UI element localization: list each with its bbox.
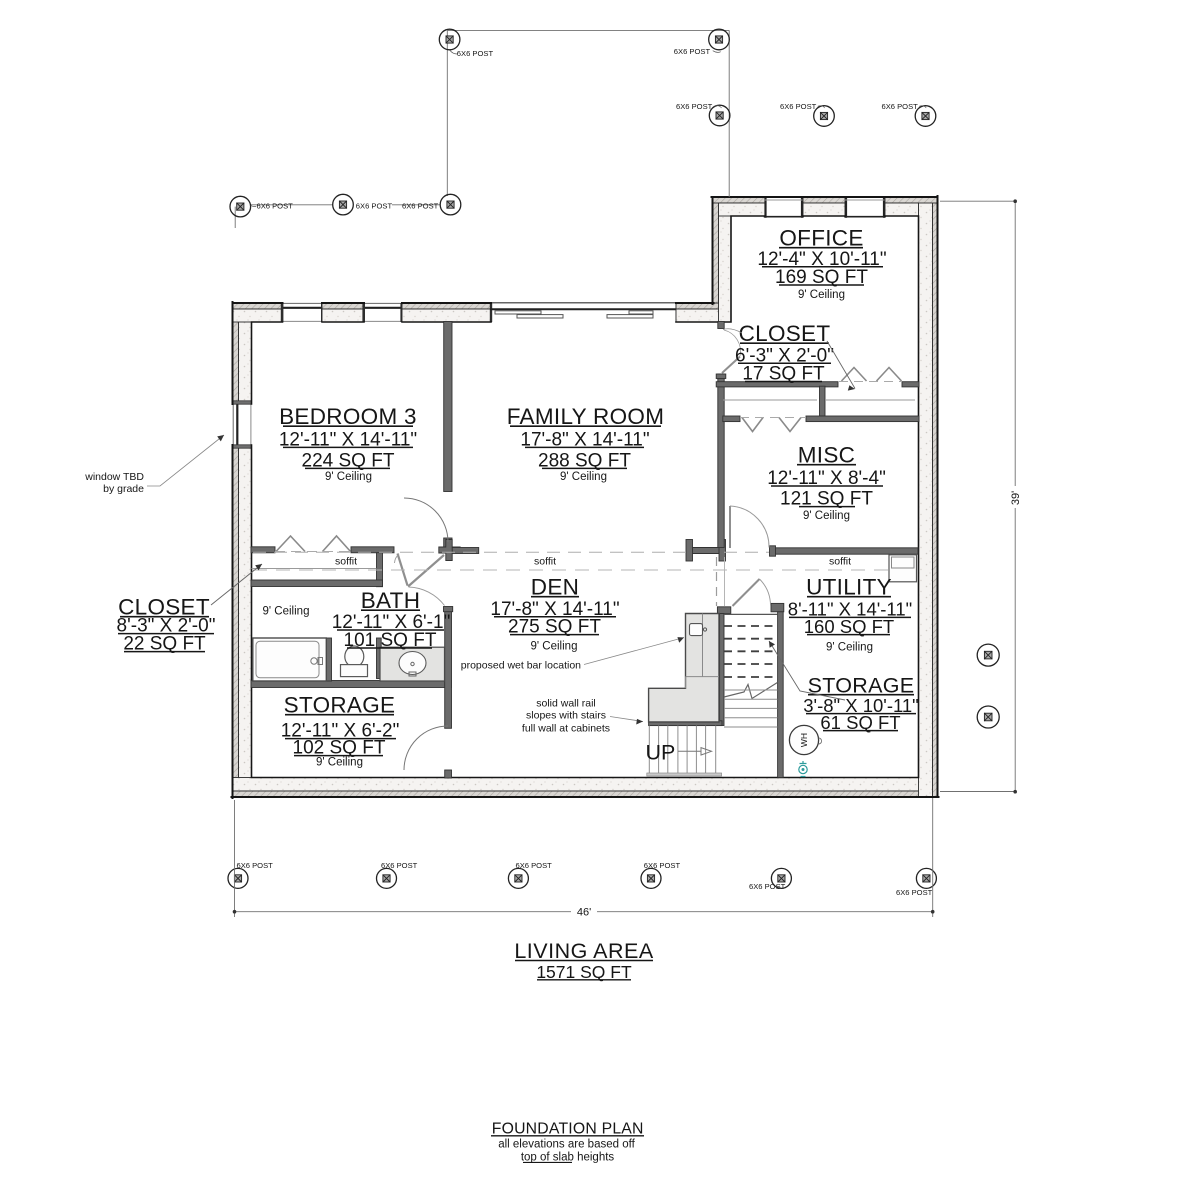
- svg-text:proposed wet bar location: proposed wet bar location: [461, 660, 581, 672]
- svg-text:9' Ceiling: 9' Ceiling: [325, 471, 372, 483]
- svg-text:WH: WH: [799, 733, 809, 747]
- svg-text:6X6 POST: 6X6 POST: [257, 202, 294, 211]
- svg-text:6X6 POST: 6X6 POST: [780, 102, 817, 111]
- svg-text:BATH: BATH: [361, 588, 421, 613]
- svg-text:6X6 POST: 6X6 POST: [674, 47, 711, 56]
- svg-text:UP: UP: [646, 741, 676, 765]
- svg-text:61 SQ FT: 61 SQ FT: [820, 712, 900, 733]
- svg-text:soffit: soffit: [534, 556, 556, 568]
- svg-text:6X6 POST: 6X6 POST: [237, 861, 274, 870]
- svg-text:window TBD: window TBD: [84, 471, 144, 483]
- svg-text:6X6 POST: 6X6 POST: [676, 102, 713, 111]
- svg-text:39': 39': [1010, 491, 1022, 505]
- svg-text:soffit: soffit: [829, 556, 851, 568]
- svg-text:160 SQ FT: 160 SQ FT: [804, 616, 894, 637]
- svg-text:LIVING AREA: LIVING AREA: [514, 939, 653, 963]
- svg-text:solid wall rail: solid wall rail: [536, 698, 596, 710]
- svg-text:soffit: soffit: [335, 556, 357, 568]
- svg-text:DEN: DEN: [531, 575, 579, 600]
- svg-text:MISC: MISC: [798, 443, 855, 468]
- svg-text:6X6 POST: 6X6 POST: [356, 202, 393, 211]
- svg-text:6X6 POST: 6X6 POST: [896, 888, 933, 897]
- svg-text:STORAGE: STORAGE: [284, 693, 396, 718]
- svg-text:9' Ceiling: 9' Ceiling: [826, 641, 873, 653]
- svg-text:6X6 POST: 6X6 POST: [381, 861, 418, 870]
- svg-text:OFFICE: OFFICE: [779, 226, 863, 251]
- svg-text:CLOSET: CLOSET: [739, 321, 831, 346]
- svg-text:slopes with stairs: slopes with stairs: [526, 710, 606, 722]
- svg-text:9' Ceiling: 9' Ceiling: [263, 606, 310, 618]
- svg-text:top of slab heights: top of slab heights: [521, 1152, 615, 1164]
- svg-text:UTILITY: UTILITY: [806, 575, 892, 600]
- svg-text:1571 SQ FT: 1571 SQ FT: [536, 962, 632, 982]
- svg-text:6X6 POST: 6X6 POST: [516, 861, 553, 870]
- svg-text:BEDROOM 3: BEDROOM 3: [279, 404, 417, 429]
- svg-text:full wall at cabinets: full wall at cabinets: [522, 723, 610, 735]
- svg-text:by grade: by grade: [103, 483, 144, 495]
- svg-text:6X6 POST: 6X6 POST: [457, 49, 494, 58]
- svg-text:9' Ceiling: 9' Ceiling: [531, 640, 578, 652]
- svg-text:9' Ceiling: 9' Ceiling: [316, 757, 363, 769]
- svg-text:FAMILY ROOM: FAMILY ROOM: [507, 404, 665, 429]
- svg-text:all elevations are based off: all elevations are based off: [498, 1139, 635, 1151]
- svg-text:6X6 POST: 6X6 POST: [749, 882, 786, 891]
- svg-text:FOUNDATION PLAN: FOUNDATION PLAN: [492, 1121, 644, 1138]
- svg-text:9' Ceiling: 9' Ceiling: [803, 510, 850, 522]
- svg-text:9' Ceiling: 9' Ceiling: [798, 289, 845, 301]
- svg-text:6X6 POST: 6X6 POST: [644, 861, 681, 870]
- svg-text:9' Ceiling: 9' Ceiling: [560, 471, 607, 483]
- svg-text:46': 46': [577, 907, 591, 919]
- svg-text:6X6 POST: 6X6 POST: [882, 102, 919, 111]
- svg-text:6X6 POST: 6X6 POST: [402, 202, 439, 211]
